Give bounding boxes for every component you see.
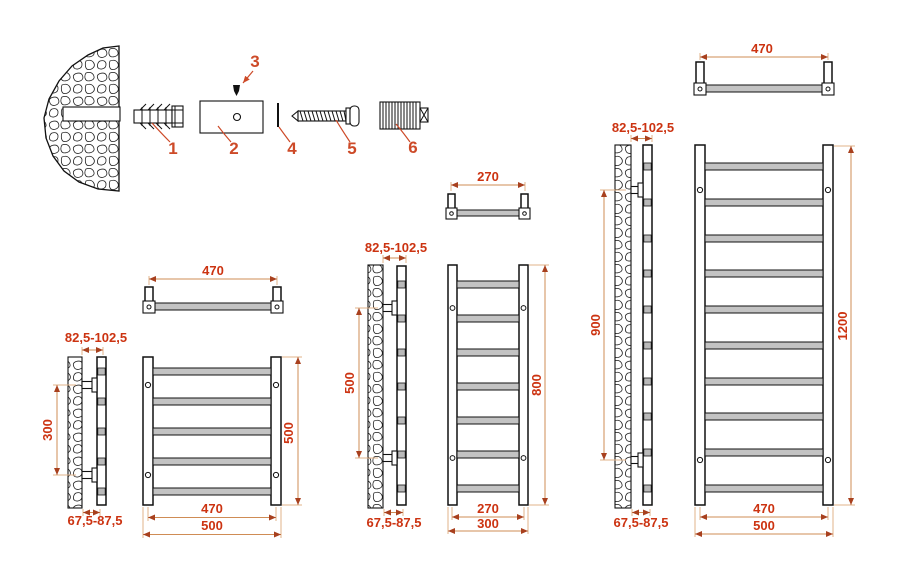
- dim-small-wall-offset-bottom: 67,5-87,5: [68, 514, 123, 528]
- side-view-medium: [355, 255, 406, 516]
- dim-small-wall-offset-top: 82,5-102,5: [65, 331, 127, 345]
- front-view-large: [695, 145, 855, 537]
- side-view-large: [600, 135, 652, 516]
- part-label-5: 5: [347, 140, 356, 158]
- drawing-canvas: [0, 0, 900, 575]
- dim-small-top-width: 470: [202, 264, 224, 278]
- dim-large-height: 1200: [836, 312, 850, 341]
- screw-part: [292, 106, 359, 126]
- dim-small-height: 500: [282, 422, 296, 444]
- mounting-plate-part: [200, 101, 263, 133]
- part-label-4: 4: [287, 140, 296, 158]
- set-screw-part: [233, 85, 240, 96]
- dim-large-wall-offset-top: 82,5-102,5: [612, 121, 674, 135]
- bushing-part: [380, 102, 428, 129]
- dim-small-bracket-spacing: 300: [41, 419, 55, 441]
- side-view-small: [53, 347, 106, 516]
- part-label-1: 1: [168, 140, 177, 158]
- top-view-small: [143, 276, 283, 313]
- dim-small-rail-width: 470: [201, 502, 223, 516]
- front-view-medium: [448, 265, 549, 534]
- dim-medium-top-width: 270: [477, 170, 499, 184]
- part-label-6: 6: [408, 139, 417, 157]
- dim-medium-wall-offset-bottom: 67,5-87,5: [367, 516, 422, 530]
- top-view-medium: [446, 182, 530, 219]
- dim-medium-rail-width: 270: [477, 502, 499, 516]
- technical-drawing-page: 1 2 3 4 5 6 470 82,5-102,5 300 67,5-87,5…: [0, 0, 900, 575]
- dim-large-top-width: 470: [751, 42, 773, 56]
- dim-large-bracket-spacing: 900: [589, 314, 603, 336]
- dim-large-rail-width: 470: [753, 502, 775, 516]
- dim-medium-overall-width: 300: [477, 517, 499, 531]
- dim-large-wall-offset-bottom: 67,5-87,5: [614, 516, 669, 530]
- dim-medium-wall-offset-top: 82,5-102,5: [365, 241, 427, 255]
- part-label-3: 3: [250, 53, 259, 71]
- wall-plug-part: [134, 104, 183, 129]
- dim-large-overall-width: 500: [753, 519, 775, 533]
- dim-medium-bracket-spacing: 500: [343, 372, 357, 394]
- wall-cross-section: [44, 46, 120, 191]
- dim-medium-height: 800: [530, 374, 544, 396]
- part-leader-lines: [152, 71, 410, 142]
- part-label-2: 2: [229, 140, 238, 158]
- dim-small-overall-width: 500: [201, 519, 223, 533]
- top-view-large: [694, 53, 834, 95]
